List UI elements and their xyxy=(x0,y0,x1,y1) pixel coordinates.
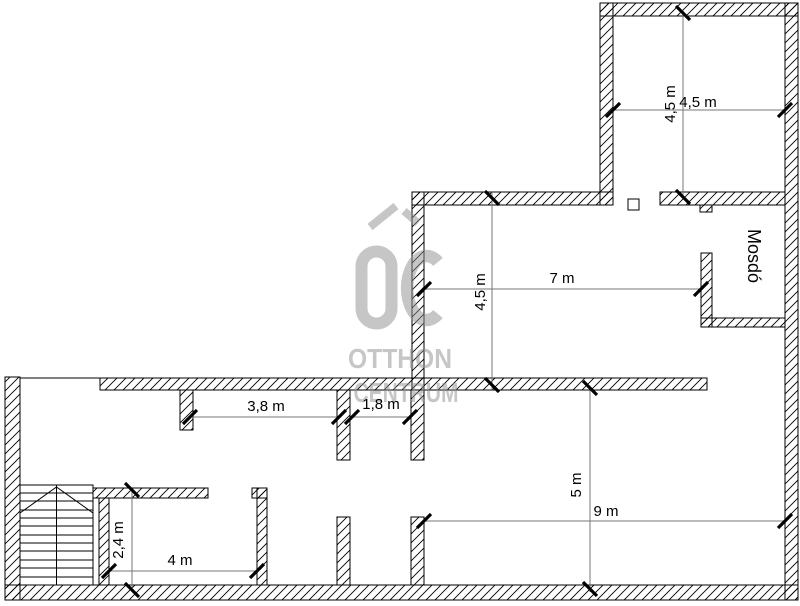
wall-segment xyxy=(600,3,613,205)
door-jamb xyxy=(628,199,639,210)
room-label-washroom: Mosdó xyxy=(744,229,764,283)
wall-segment xyxy=(412,192,613,205)
dim-main-room-height-label: 5 m xyxy=(568,472,585,497)
wall-segment xyxy=(180,390,193,430)
watermark-line1: OTTHON xyxy=(348,343,452,374)
dim-top-room-width-label: 4,5 m xyxy=(679,94,717,111)
dim-passage-left-label: 3,8 m xyxy=(247,398,285,415)
wall-segment xyxy=(701,253,712,327)
wall-segment xyxy=(785,3,798,600)
logo-letter-o-icon xyxy=(362,252,392,324)
dim-hall-height-label: 4,5 m xyxy=(472,273,489,311)
wall-segment xyxy=(337,517,350,585)
dim-storage-width-label: 4 m xyxy=(167,552,192,569)
dim-main-room-width-label: 9 m xyxy=(593,503,618,520)
dim-storage-height-label: 2,4 m xyxy=(110,521,127,559)
wall-segment xyxy=(337,390,350,460)
walls-layer xyxy=(5,3,798,600)
logo-roof-left-icon xyxy=(370,206,396,227)
wall-segment xyxy=(5,377,20,600)
wall-segment xyxy=(5,585,798,600)
dim-passage-right-label: 1,8 m xyxy=(362,396,400,413)
wall-segment xyxy=(701,318,785,327)
watermark: OTTHON CENTRUM xyxy=(348,206,459,408)
wall-segment xyxy=(700,205,712,212)
dim-hall-width-label: 7 m xyxy=(549,270,574,287)
dim-top-room-height-label: 4,5 m xyxy=(662,85,679,123)
wall-segment xyxy=(600,3,798,16)
stairs xyxy=(20,485,93,585)
floorplan-page: OTTHON CENTRUM 4,5 m 4,5 m 4,5 m 7 m 3,8… xyxy=(0,0,800,606)
floorplan-drawing: OTTHON CENTRUM 4,5 m 4,5 m 4,5 m 7 m 3,8… xyxy=(0,0,800,606)
wall-segment xyxy=(93,488,208,498)
watermark-logo xyxy=(362,206,439,324)
